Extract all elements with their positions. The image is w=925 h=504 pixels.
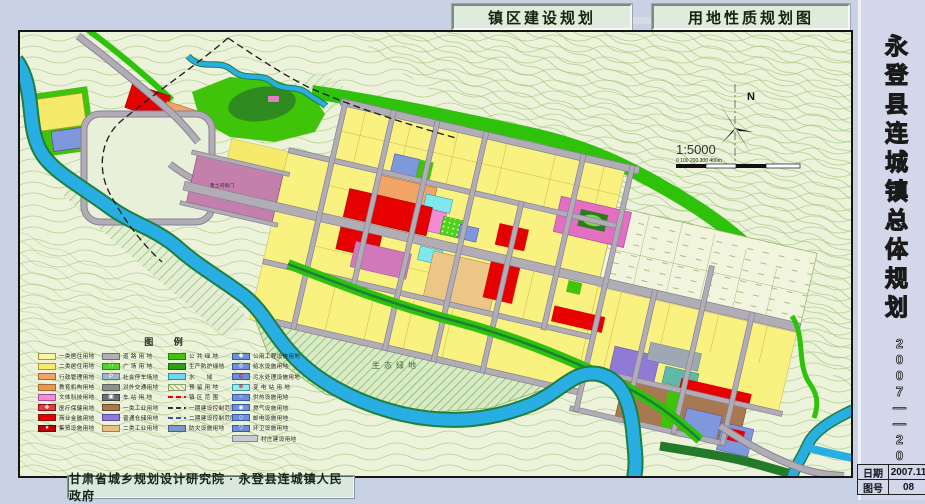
legend-swatch: ⊙: [232, 373, 250, 380]
legend-item: 商业金融用地: [38, 413, 94, 423]
legend-item: ◉燃气设施用地: [232, 402, 300, 412]
map-title-left: 镇区建设规划: [452, 4, 632, 30]
legend-title: 图 例: [108, 335, 228, 348]
legend-label: 道 路 用 地: [123, 352, 152, 360]
date-label: 日期: [858, 465, 889, 480]
legend-label: 普通仓储用地: [123, 414, 158, 422]
legend-label: 防灾设施用地: [189, 424, 224, 432]
legend-label: 污水处理设施用地: [253, 373, 300, 381]
legend-swatch: [168, 425, 186, 432]
legend-label: 文体科技用地: [59, 393, 94, 401]
title-panel: 永登县连城镇总体规划 2007——2020 日期 2007.11 图号 08: [858, 0, 925, 500]
legend-label: 对外交通用地: [123, 383, 158, 391]
legend-label: 镇 区 范 围: [189, 393, 218, 401]
scale-ticks: 0 100 200 300 400m: [676, 158, 722, 164]
credit-box: 甘肃省城乡规划设计研究院 · 永登县连城镇人民政府: [68, 476, 354, 498]
legend-item: ⊙污水处理设施用地: [232, 372, 300, 382]
legend-label: 一类工业用地: [123, 404, 158, 412]
legend-swatch: [102, 404, 120, 411]
legend-swatch: [38, 394, 56, 401]
scale-text: 1:5000: [676, 142, 716, 157]
legend-swatch: [168, 384, 186, 391]
legend-item: 一类居住用地: [38, 351, 94, 361]
legend-swatch: ▽: [232, 425, 250, 432]
legend-item: ⊗变 电 站 用 地: [232, 382, 300, 392]
legend-label: 水 域: [189, 373, 213, 381]
legend-item: ✚医疗保健用地: [38, 402, 94, 412]
legend-swatch: [168, 353, 186, 360]
legend-item: ◎给水设施用地: [232, 361, 300, 371]
legend-item: ∷广 场 用 地: [102, 361, 158, 371]
legend-swatch: [38, 384, 56, 391]
legend-item: ◆公用工程设施用地: [232, 351, 300, 361]
legend-swatch: ▣: [102, 394, 120, 401]
legend-label: 公 共 绿 地: [189, 352, 218, 360]
historic-site-label: 鲁土司衙门: [210, 182, 234, 189]
legend-swatch: [168, 396, 186, 398]
legend-swatch: ⊗: [232, 384, 250, 391]
legend-swatch: ◎: [232, 363, 250, 370]
legend-label: 广 场 用 地: [123, 362, 152, 370]
legend-label: 邮电设施用地: [253, 414, 288, 422]
legend-item: 教育机构用地: [38, 382, 94, 392]
sheet-number-row: 图号 08: [858, 480, 925, 495]
legend-swatch: ●: [38, 425, 56, 432]
legend-item: ●集贸设施用地: [38, 423, 94, 433]
legend-label: 二类居住用地: [59, 362, 94, 370]
legend-item: 生产防护绿地: [168, 361, 236, 371]
legend-column: 道 路 用 地∷广 场 用 地P社会停车场地对外交通用地▣车 站 用 地一类工业…: [102, 351, 158, 433]
legend-swatch: [38, 363, 56, 370]
legend-label: 二类工业用地: [123, 424, 158, 432]
legend-item: 对外交通用地: [102, 382, 158, 392]
legend-swatch: ◉: [232, 404, 250, 411]
legend-label: 给水设施用地: [253, 362, 288, 370]
legend-item: ◇邮电设施用地: [232, 413, 300, 423]
legend-item: ▽环卫设施用地: [232, 423, 300, 433]
legend-item: 普通仓储用地: [102, 413, 158, 423]
legend-item: 二类工业用地: [102, 423, 158, 433]
legend-label: 医疗保健用地: [59, 404, 94, 412]
legend-label: 商业金融用地: [59, 414, 94, 422]
legend-label: 供热设施用地: [253, 393, 288, 401]
legend-label: 公用工程设施用地: [253, 352, 300, 360]
sheet-number-label: 图号: [858, 480, 889, 495]
legend-label: 环卫设施用地: [253, 424, 288, 432]
legend-column: 一类居住用地二类居住用地行政管理用地教育机构用地文体科技用地✚医疗保健用地商业金…: [38, 351, 94, 433]
legend-swatch: ◆: [232, 353, 250, 360]
sheet-number-value: 08: [889, 480, 925, 495]
legend-item: 预 留 用 地: [168, 382, 236, 392]
legend-item: 二期建设控制范围: [168, 413, 236, 423]
legend-swatch: [168, 363, 186, 370]
legend-swatch: [102, 353, 120, 360]
legend-item: 防灾设施用地: [168, 423, 236, 433]
legend-item: P社会停车场地: [102, 372, 158, 382]
legend-label: 集贸设施用地: [59, 424, 94, 432]
legend-label: 一类居住用地: [59, 352, 94, 360]
legend-label: 生产防护绿地: [189, 362, 224, 370]
legend-swatch: [168, 373, 186, 380]
legend-swatch: [38, 373, 56, 380]
legend-item: 一类工业用地: [102, 402, 158, 412]
legend-label: 教育机构用地: [59, 383, 94, 391]
legend-column: ◆公用工程设施用地◎给水设施用地⊙污水处理设施用地⊗变 电 站 用 地○供热设施…: [232, 351, 300, 444]
legend-swatch: [168, 417, 186, 419]
legend-column: 公 共 绿 地生产防护绿地水 域预 留 用 地镇 区 范 围一期建设控制范围二期…: [168, 351, 236, 433]
legend-label: 社会停车场地: [123, 373, 158, 381]
legend-swatch: ✚: [38, 404, 56, 411]
legend-label: 村庄建设用地: [261, 435, 296, 443]
legend-item: 一期建设控制范围: [168, 402, 236, 412]
sheet-info-table: 日期 2007.11 图号 08: [857, 464, 925, 495]
legend-item: ▣车 站 用 地: [102, 392, 158, 402]
legend-item: 公 共 绿 地: [168, 351, 236, 361]
legend-swatch: ◇: [232, 414, 250, 421]
legend-swatch: [168, 407, 186, 409]
legend-label: 变 电 站 用 地: [253, 383, 290, 391]
legend-swatch: P: [102, 373, 120, 380]
legend-item: 文体科技用地: [38, 392, 94, 402]
legend-item: 二类居住用地: [38, 361, 94, 371]
legend-item: 道 路 用 地: [102, 351, 158, 361]
map-title-right: 用地性质规划图: [652, 4, 850, 30]
legend-swatch: [102, 414, 120, 421]
legend-item: 行政管理用地: [38, 372, 94, 382]
legend-item: ○供热设施用地: [232, 392, 300, 402]
legend-label: 预 留 用 地: [189, 383, 218, 391]
legend-label: 行政管理用地: [59, 373, 94, 381]
date-row: 日期 2007.11: [858, 465, 925, 480]
north-label: N: [747, 91, 755, 103]
legend-item: 镇 区 范 围: [168, 392, 236, 402]
map-canvas: N 1:5000 0 100 200 300 400m 鲁土司衙门 生态绿地 图…: [18, 30, 853, 478]
legend-label: 车 站 用 地: [123, 393, 152, 401]
legend-label: 一期建设控制范围: [189, 404, 236, 412]
legend-label: 燃气设施用地: [253, 404, 288, 412]
legend-swatch: [102, 384, 120, 391]
legend-item: 水 域: [168, 372, 236, 382]
legend: 图 例 一类居住用地二类居住用地行政管理用地教育机构用地文体科技用地✚医疗保健用…: [38, 335, 338, 465]
legend-swatch: ○: [232, 394, 250, 401]
plan-title-vertical: 永登县连城镇总体规划: [878, 34, 912, 324]
date-value: 2007.11: [889, 465, 925, 480]
legend-swatch: ∷: [102, 363, 120, 370]
legend-swatch: [102, 425, 120, 432]
legend-label: 二期建设控制范围: [189, 414, 236, 422]
planning-sheet: { "header": { "title_left": "镇区建设规划", "t…: [0, 0, 925, 500]
eco-green-label: 生态绿地: [372, 360, 420, 370]
legend-swatch: [38, 353, 56, 360]
legend-item: 村庄建设用地: [232, 433, 300, 443]
legend-swatch: [38, 414, 56, 421]
legend-swatch: [232, 435, 258, 442]
